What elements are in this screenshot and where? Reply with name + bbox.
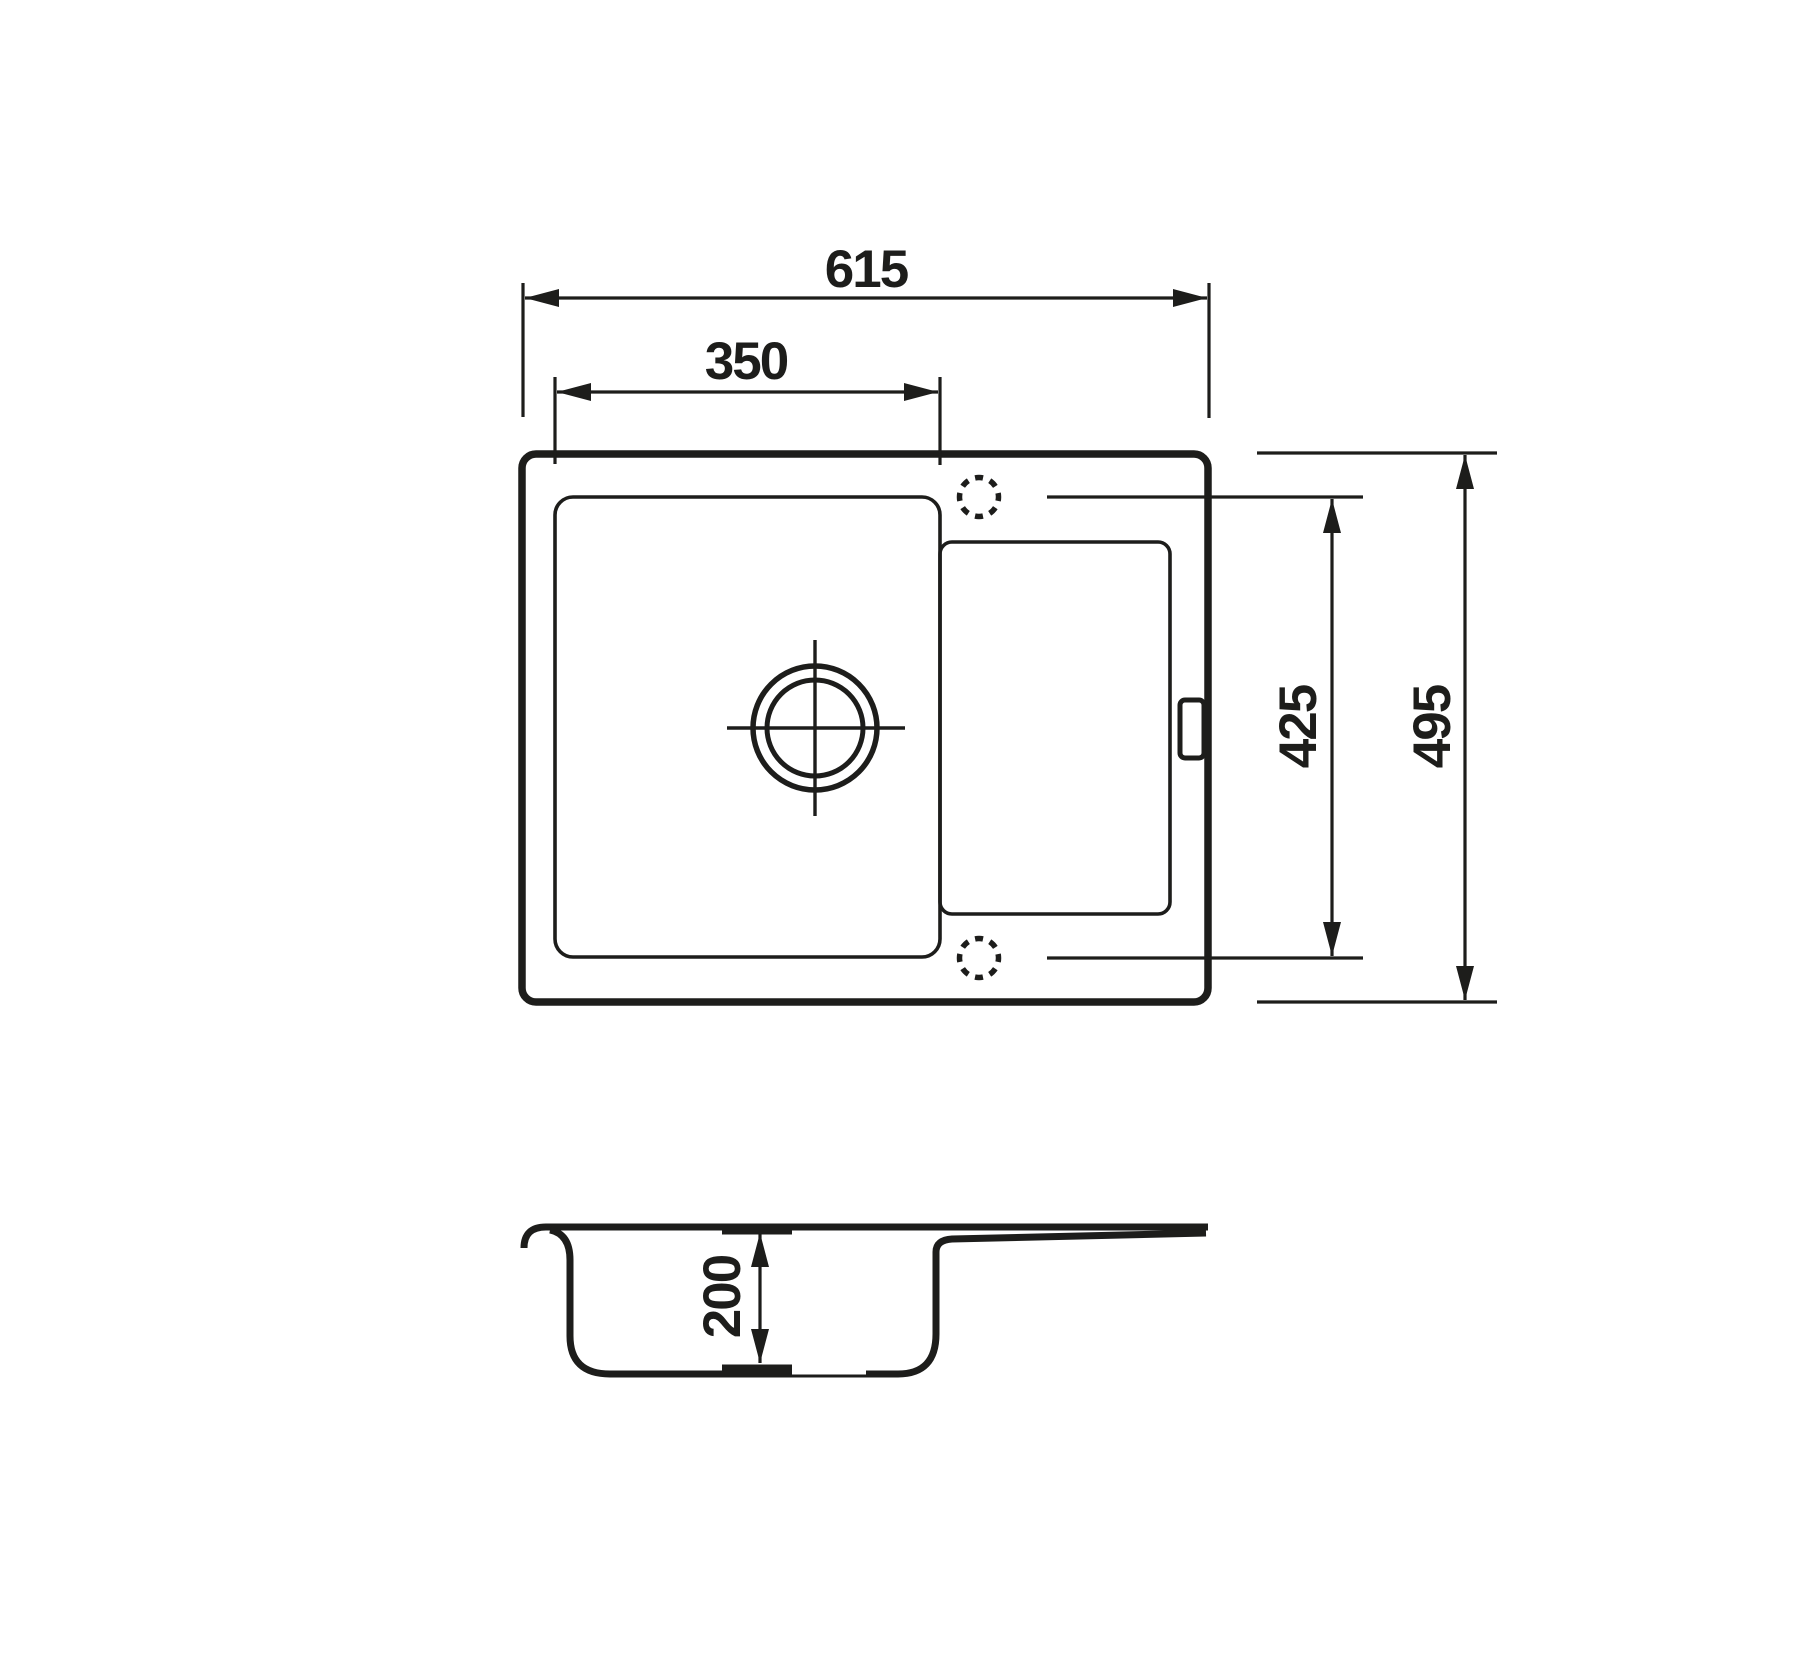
- dim-label-bowl-depth: 200: [693, 1255, 752, 1338]
- arrowhead-right-icon: [1173, 289, 1207, 307]
- dim-label-bowl-width: 350: [705, 332, 788, 391]
- arrowhead-down-icon: [1323, 922, 1341, 956]
- arrowhead-left-icon: [525, 289, 559, 307]
- drainboard-outline: [940, 542, 1170, 914]
- sink-dimension-drawing: 615 350 425 495: [0, 0, 1800, 1671]
- dim-label-hole-spacing: 425: [1269, 685, 1328, 768]
- arrowhead-up-icon: [1456, 455, 1474, 489]
- technical-drawing-page: 615 350 425 495: [0, 0, 1800, 1671]
- overflow-slot: [1180, 700, 1204, 758]
- arrowhead-right-icon: [904, 383, 938, 401]
- section-bowl-right-profile: [866, 1233, 1206, 1374]
- dim-label-overall-width: 615: [825, 240, 908, 299]
- dim-label-overall-depth: 495: [1403, 685, 1462, 768]
- arrowhead-up-icon: [751, 1233, 769, 1267]
- section-view: [524, 1227, 1208, 1376]
- dim-bowl-width: 350: [555, 332, 940, 465]
- arrowhead-up-icon: [1323, 499, 1341, 533]
- faucet-hole-top-icon: [960, 478, 999, 517]
- arrowhead-down-icon: [1456, 966, 1474, 1000]
- arrowhead-down-icon: [751, 1329, 769, 1363]
- dim-bowl-depth: 200: [693, 1233, 769, 1363]
- faucet-hole-bottom-icon: [960, 939, 999, 978]
- drain-symbol: [727, 640, 905, 816]
- arrowhead-left-icon: [557, 383, 591, 401]
- top-view: [522, 454, 1208, 1002]
